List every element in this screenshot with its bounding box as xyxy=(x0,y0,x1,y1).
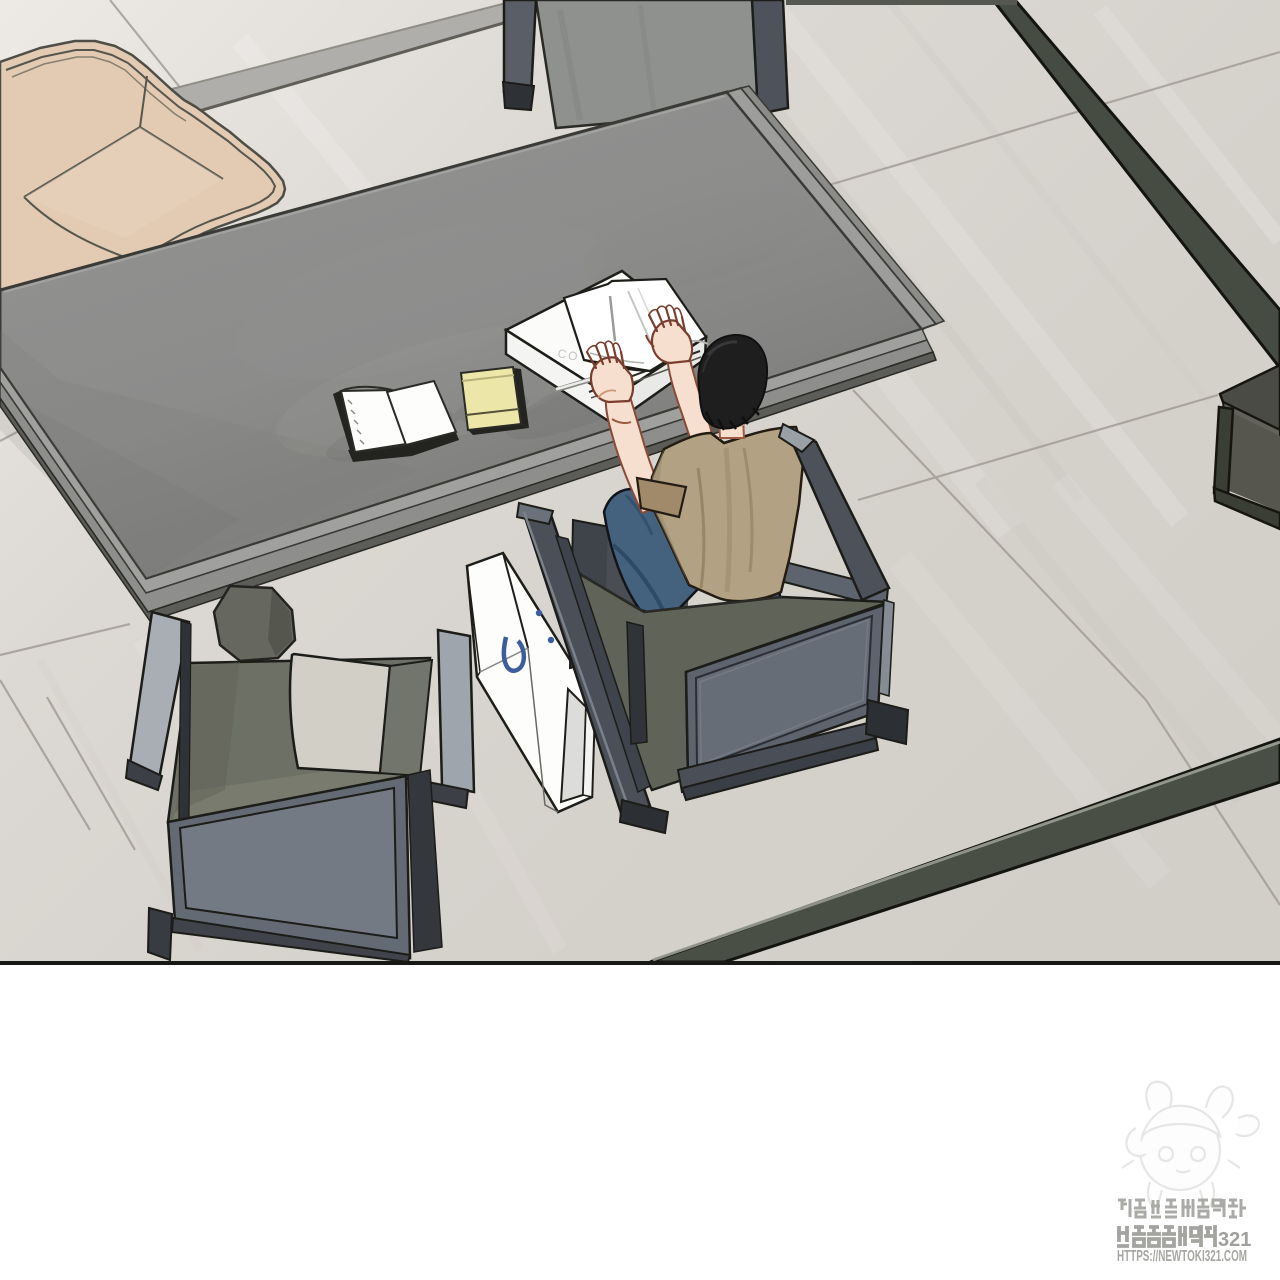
svg-text:HTTPS://NEWTOKI321.COM: HTTPS://NEWTOKI321.COM xyxy=(1117,1248,1247,1265)
